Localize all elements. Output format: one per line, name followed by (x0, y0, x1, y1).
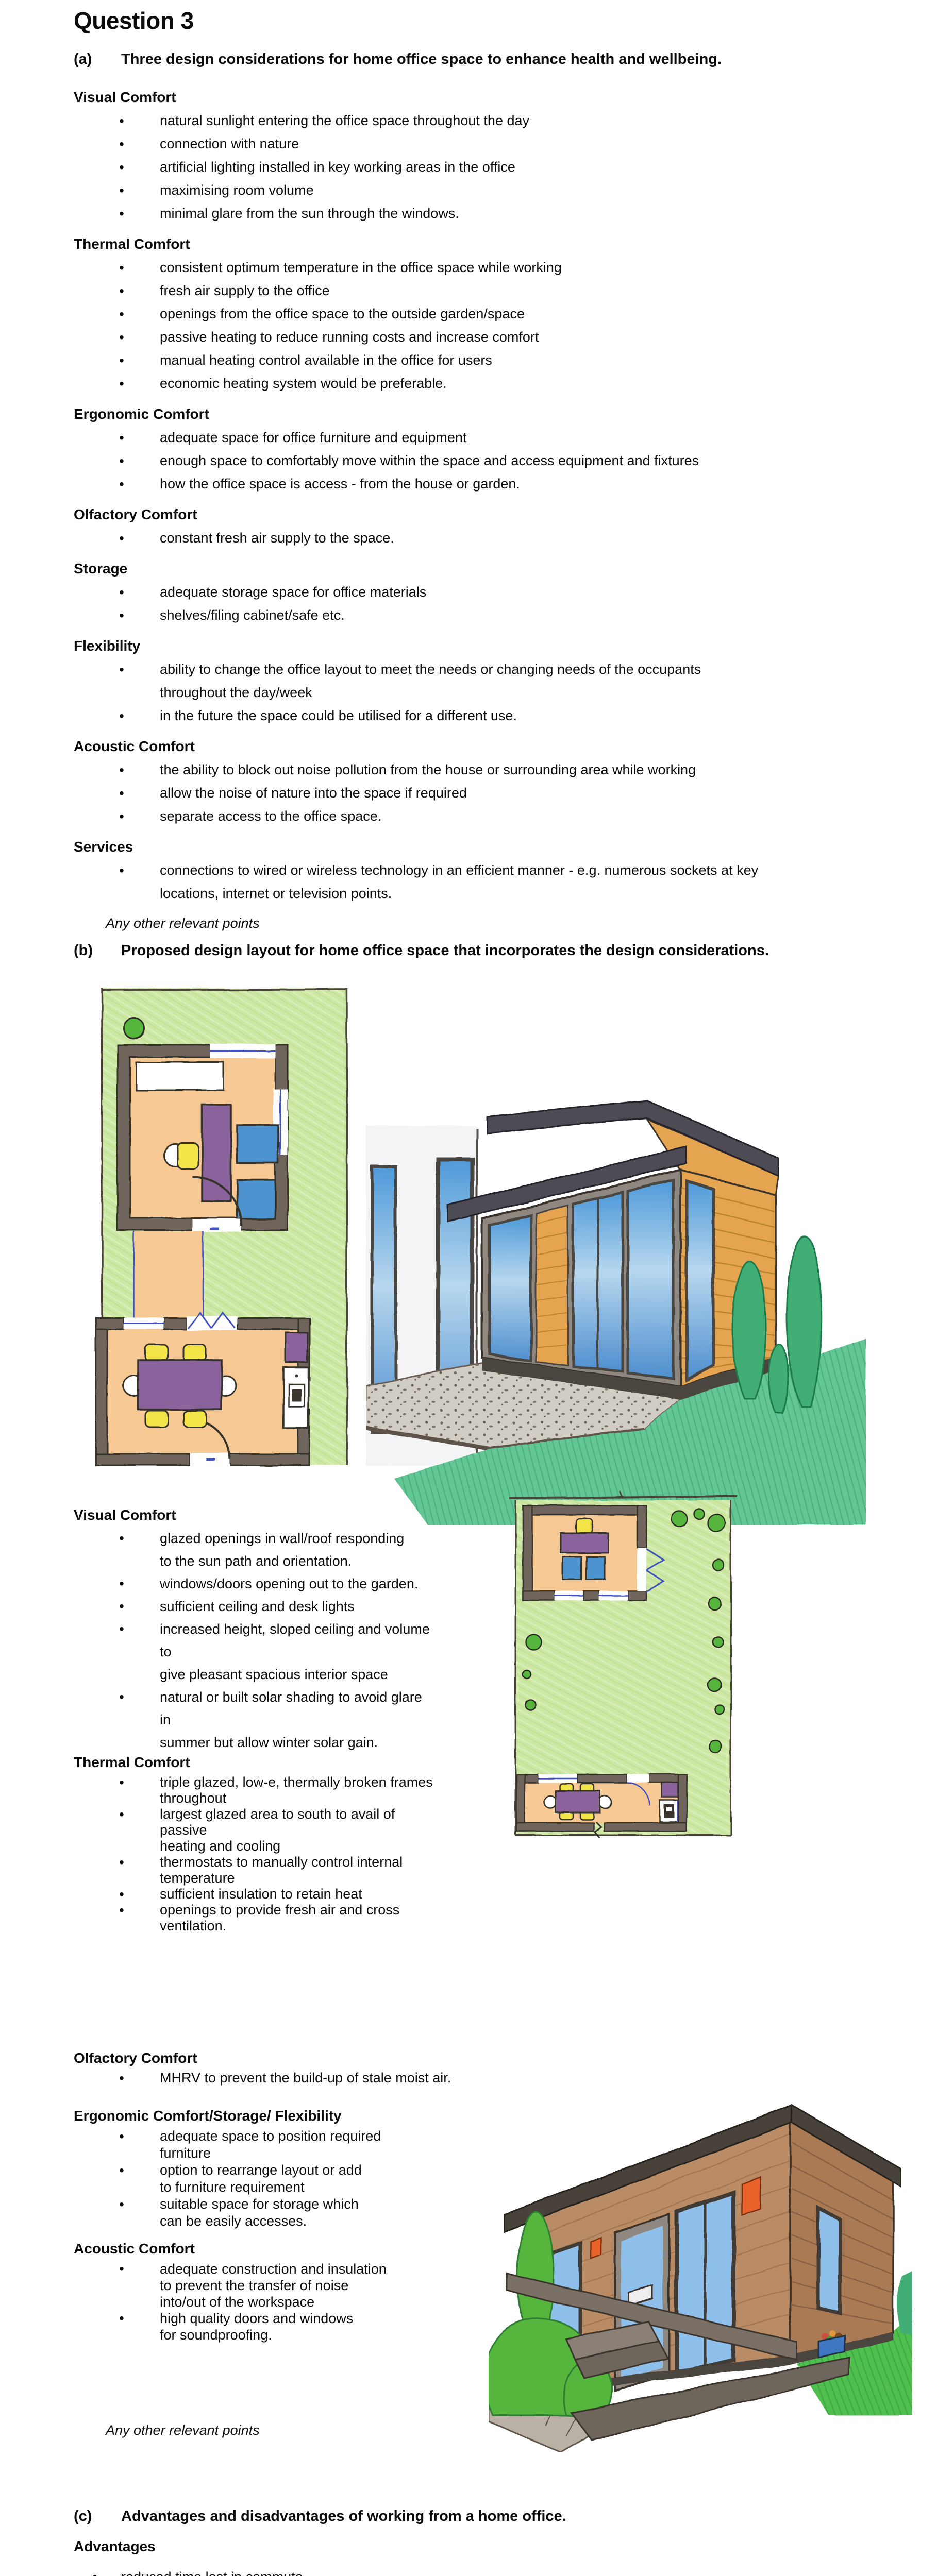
bullet-item: natural sunlight entering the office spa… (74, 109, 862, 132)
front-window-large (677, 2193, 733, 2373)
bullet-item: option to rearrange layout or add to fur… (74, 2162, 434, 2196)
bullet-item: sufficient ceiling and desk lights (74, 1595, 434, 1618)
bullet-item: economic heating system would be prefera… (74, 372, 862, 395)
bullet-item: MHRV to prevent the build-up of stale mo… (74, 2070, 465, 2086)
bullet-item: glazed openings in wall/roof responding … (74, 1527, 434, 1572)
bullet-item: artificial lighting installed in key wor… (74, 156, 862, 179)
bullet-list: constant fresh air supply to the space. (74, 527, 862, 550)
office-chair (177, 1143, 198, 1168)
office-chair-blue (563, 1557, 581, 1580)
bullet-item: the ability to block out noise pollution… (74, 758, 862, 782)
group-heading: Ergonomic Comfort (74, 405, 862, 423)
bullet-item: sufficient insulation to retain heat (74, 1886, 434, 1902)
bullet-item: in the future the space could be utilise… (74, 704, 862, 727)
part-c-heading-text: Advantages and disadvantages of working … (121, 2507, 566, 2526)
garden-office-cabin (447, 1100, 778, 1399)
part-a-label: (a) (74, 50, 121, 69)
group-olfactory-comfort-a: Olfactory Comfort constant fresh air sup… (74, 506, 862, 550)
office-plan (523, 1505, 664, 1600)
bullet-list: adequate space for office furniture and … (74, 426, 862, 496)
office-window-top (210, 1044, 275, 1058)
cabin-window (490, 1215, 531, 1361)
office-chair (576, 1519, 593, 1534)
cabin-window (628, 1180, 673, 1378)
part-a-footnote: Any other relevant points (106, 914, 862, 932)
group-storage-a: Storage adequate storage space for offic… (74, 560, 862, 627)
group-heading: Storage (74, 560, 862, 578)
part-b-label: (b) (74, 941, 121, 960)
bullet-item: reduced time lost in commute (74, 2565, 795, 2576)
part-b-footnote: Any other relevant points (106, 2421, 260, 2439)
group-heading: Visual Comfort (74, 89, 862, 106)
bullet-list: connections to wired or wireless technol… (74, 859, 862, 905)
bullet-item: openings to provide fresh air and cross … (74, 1902, 434, 1934)
office-chair-blue (587, 1557, 605, 1580)
kitchen-appliance (660, 1800, 678, 1822)
group-heading: Flexibility (74, 637, 862, 655)
group-heading: Olfactory Comfort (74, 2049, 465, 2067)
kitchen-units (283, 1332, 308, 1428)
bullet-list: MHRV to prevent the build-up of stale mo… (74, 2070, 465, 2086)
bullet-item: windows/doors opening out to the garden. (74, 1572, 434, 1595)
bullet-item: suitable space for storage which can be … (74, 2196, 434, 2230)
part-a-heading: (a) Three design considerations for home… (74, 50, 878, 69)
group-visual-comfort-a: Visual Comfort natural sunlight entering… (74, 89, 862, 225)
bullet-item: allow the noise of nature into the space… (74, 782, 862, 805)
office-plan (118, 1044, 288, 1232)
group-heading: Ergonomic Comfort/Storage/ Flexibility (74, 2107, 434, 2125)
shrubs (733, 1236, 822, 1413)
bullet-item: adequate space for office furniture and … (74, 426, 862, 449)
bullet-item: minimal glare from the sun through the w… (74, 202, 862, 225)
group-heading: Thermal Comfort (74, 235, 862, 253)
group-heading: Services (74, 838, 862, 856)
cabin-cladding-strip (536, 1206, 568, 1365)
bullet-item: connections to wired or wireless technol… (74, 859, 862, 905)
group-flexibility-a: Flexibility ability to change the office… (74, 637, 862, 727)
part-a-heading-text: Three design considerations for home off… (121, 50, 722, 69)
bullet-list: glazed openings in wall/roof responding … (74, 1527, 434, 1754)
kitchen-counter (662, 1783, 678, 1797)
bullet-item: adequate space to position required furn… (74, 2128, 434, 2162)
part-c-heading: (c) Advantages and disadvantages of work… (74, 2507, 878, 2526)
group-visual-comfort-b: Visual Comfort glazed openings in wall/r… (74, 1506, 434, 1754)
bullet-item: separate access to the office space. (74, 805, 862, 828)
group-heading: Olfactory Comfort (74, 506, 862, 523)
bullet-item: how the office space is access - from th… (74, 472, 862, 496)
bullet-item: increased height, sloped ceiling and vol… (74, 1618, 434, 1686)
group-ergonomic-storage-flexibility-b: Ergonomic Comfort/Storage/ Flexibility a… (74, 2107, 434, 2230)
group-olfactory-comfort-b: Olfactory Comfort MHRV to prevent the bu… (74, 2049, 465, 2086)
house-window (124, 1318, 164, 1329)
bullet-item: shelves/filing cabinet/safe etc. (74, 604, 862, 627)
group-acoustic-comfort-a: Acoustic Comfort the ability to block ou… (74, 738, 862, 828)
bullet-list: natural sunlight entering the office spa… (74, 109, 862, 225)
bullet-item: enough space to comfortably move within … (74, 449, 862, 472)
document-page: Question 3 (a) Three design consideratio… (0, 0, 937, 2576)
bullet-item: largest glazed area to south to avail of… (74, 1806, 434, 1854)
group-thermal-comfort-b: Thermal Comfort triple glazed, low-e, th… (74, 1754, 434, 1934)
page-title: Question 3 (74, 7, 194, 34)
bullet-list: consistent optimum temperature in the of… (74, 256, 862, 395)
bullet-item: adequate construction and insulation to … (74, 2261, 434, 2310)
group-acoustic-comfort-b: Acoustic Comfort adequate construction a… (74, 2240, 434, 2343)
bullet-item: fresh air supply to the office (74, 279, 862, 302)
bullet-item: maximising room volume (74, 179, 862, 202)
bullet-item: consistent optimum temperature in the of… (74, 256, 862, 279)
group-ergonomic-comfort-a: Ergonomic Comfort adequate space for off… (74, 405, 862, 496)
dining-table (138, 1360, 222, 1410)
bullet-list: reduced time lost in commuteincreased fr… (74, 2565, 795, 2576)
part-c-label: (c) (74, 2507, 121, 2526)
bullet-item: passive heating to reduce running costs … (74, 326, 862, 349)
bullet-list: adequate storage space for office materi… (74, 581, 862, 627)
part-b-heading-text: Proposed design layout for home office s… (121, 941, 769, 960)
bullet-item: connection with nature (74, 132, 862, 156)
office-side-desk (237, 1125, 278, 1163)
bullet-item: thermostats to manually control internal… (74, 1854, 434, 1886)
bullet-list: the ability to block out noise pollution… (74, 758, 862, 828)
group-heading: Advantages (74, 2538, 795, 2555)
bullet-item: ability to change the office layout to m… (74, 658, 862, 704)
group-heading: Acoustic Comfort (74, 2240, 434, 2258)
shrub (897, 2271, 912, 2335)
bullet-item: natural or built solar shading to avoid … (74, 1686, 434, 1754)
bullet-item: adequate storage space for office materi… (74, 581, 862, 604)
group-services-a: Services connections to wired or wireles… (74, 838, 862, 905)
cabin-corner-window (687, 1181, 713, 1380)
group-thermal-comfort-a: Thermal Comfort consistent optimum tempe… (74, 235, 862, 395)
bullet-item: high quality doors and windows for sound… (74, 2310, 434, 2343)
office-desk (202, 1105, 231, 1201)
group-advantages: Advantages reduced time lost in commutei… (74, 2538, 795, 2576)
part-a-groups: Visual Comfort natural sunlight entering… (74, 89, 862, 932)
bullet-list: adequate construction and insulation to … (74, 2261, 434, 2343)
group-heading: Visual Comfort (74, 1506, 434, 1524)
bullet-list: triple glazed, low-e, thermally broken f… (74, 1774, 434, 1934)
bullet-item: constant fresh air supply to the space. (74, 527, 862, 550)
bullet-item: manual heating control available in the … (74, 349, 862, 372)
bullet-item: triple glazed, low-e, thermally broken f… (74, 1774, 434, 1806)
figure-office-exterior-1 (366, 1097, 866, 1525)
bullet-list: adequate space to position required furn… (74, 2128, 434, 2230)
office-side-desk (237, 1180, 275, 1219)
bullet-item: openings from the office space to the ou… (74, 302, 862, 326)
group-heading: Acoustic Comfort (74, 738, 862, 755)
group-heading: Thermal Comfort (74, 1754, 434, 1771)
bullet-list: ability to change the office layout to m… (74, 658, 862, 727)
side-window (818, 2208, 840, 2313)
figure-site-plan (509, 1488, 737, 1844)
figure-office-exterior-2 (489, 2055, 912, 2452)
part-b-heading: (b) Proposed design layout for home offi… (74, 941, 878, 960)
house-plan (96, 1313, 309, 1466)
office-alcove (136, 1062, 224, 1090)
dining-table (556, 1791, 600, 1812)
office-desk (561, 1533, 608, 1553)
